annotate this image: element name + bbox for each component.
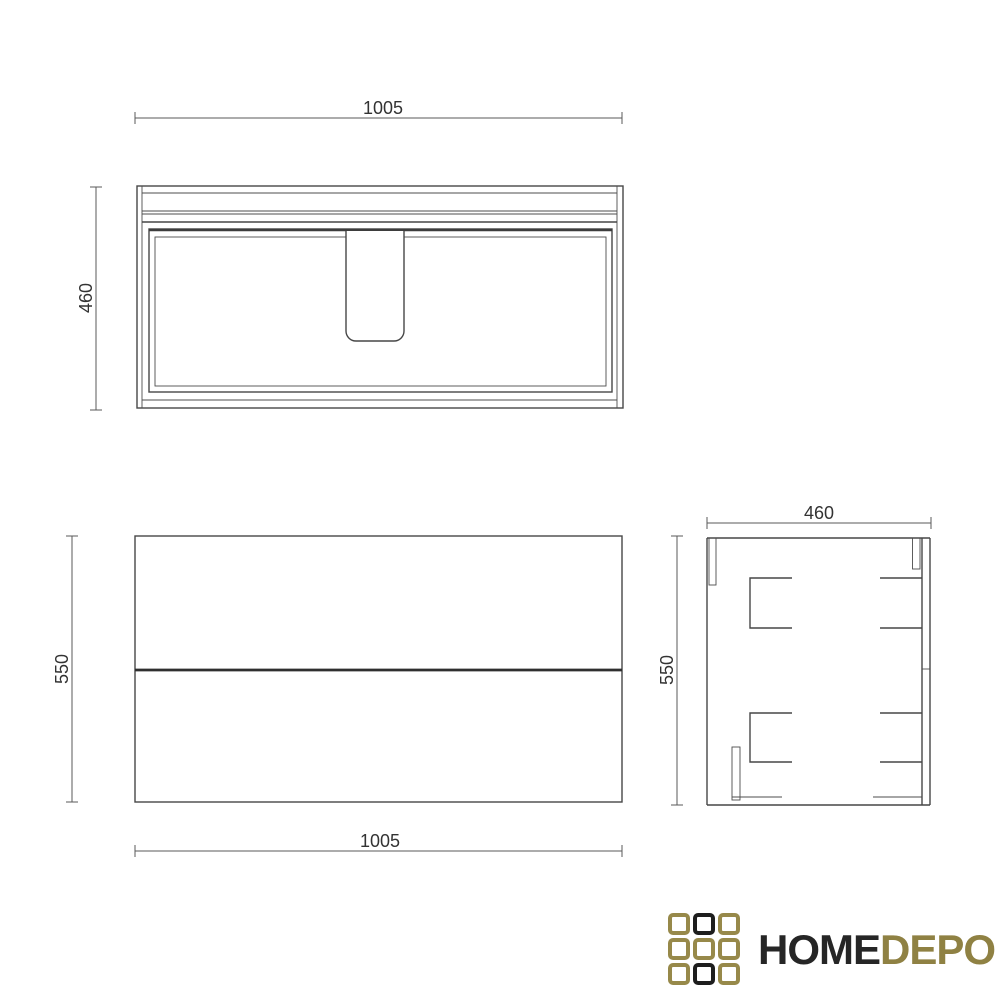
logo-square (668, 913, 690, 935)
drawer-runner-lower-front (750, 713, 792, 762)
top-view (137, 186, 623, 408)
dim-side-height: 550 (657, 536, 683, 805)
logo-square (718, 913, 740, 935)
front-view (135, 536, 622, 802)
brand-logo: HOMEDEPO (660, 905, 1000, 1000)
logo-square (718, 963, 740, 985)
dim-label-top-depth: 460 (76, 283, 96, 313)
logo-square (718, 938, 740, 960)
logo-square (668, 963, 690, 985)
logo-square (693, 938, 715, 960)
faucet-slot-fill (346, 231, 404, 341)
dim-top-width: 1005 (135, 98, 622, 124)
dim-label-front-width: 1005 (360, 831, 400, 851)
dim-label-side-depth: 460 (804, 503, 834, 523)
dim-label-front-height: 550 (52, 654, 72, 684)
dim-front-height: 550 (52, 536, 78, 802)
dim-top-depth: 460 (76, 187, 102, 410)
dim-label-top-width: 1005 (363, 98, 403, 118)
logo-text-home: HOME (758, 926, 880, 973)
mount-rail-top-right (913, 538, 921, 569)
technical-drawing-page: 1005 460 550 1005 (0, 0, 1000, 1000)
mount-rail-top-left (709, 538, 716, 585)
logo-square (693, 963, 715, 985)
logo-square (693, 913, 715, 935)
logo-square (668, 938, 690, 960)
drawer-runner-upper-front (750, 578, 792, 628)
side-view (707, 538, 930, 805)
dim-label-side-height: 550 (657, 655, 677, 685)
bottom-bracket-left (732, 747, 740, 800)
logo-text: HOMEDEPO (758, 929, 995, 971)
dim-side-depth: 460 (707, 503, 931, 529)
logo-text-depo: DEPO (880, 926, 995, 973)
drawing-svg: 1005 460 550 1005 (0, 0, 1000, 1000)
logo-grid-icon (668, 913, 740, 985)
dim-front-width: 1005 (135, 831, 622, 857)
